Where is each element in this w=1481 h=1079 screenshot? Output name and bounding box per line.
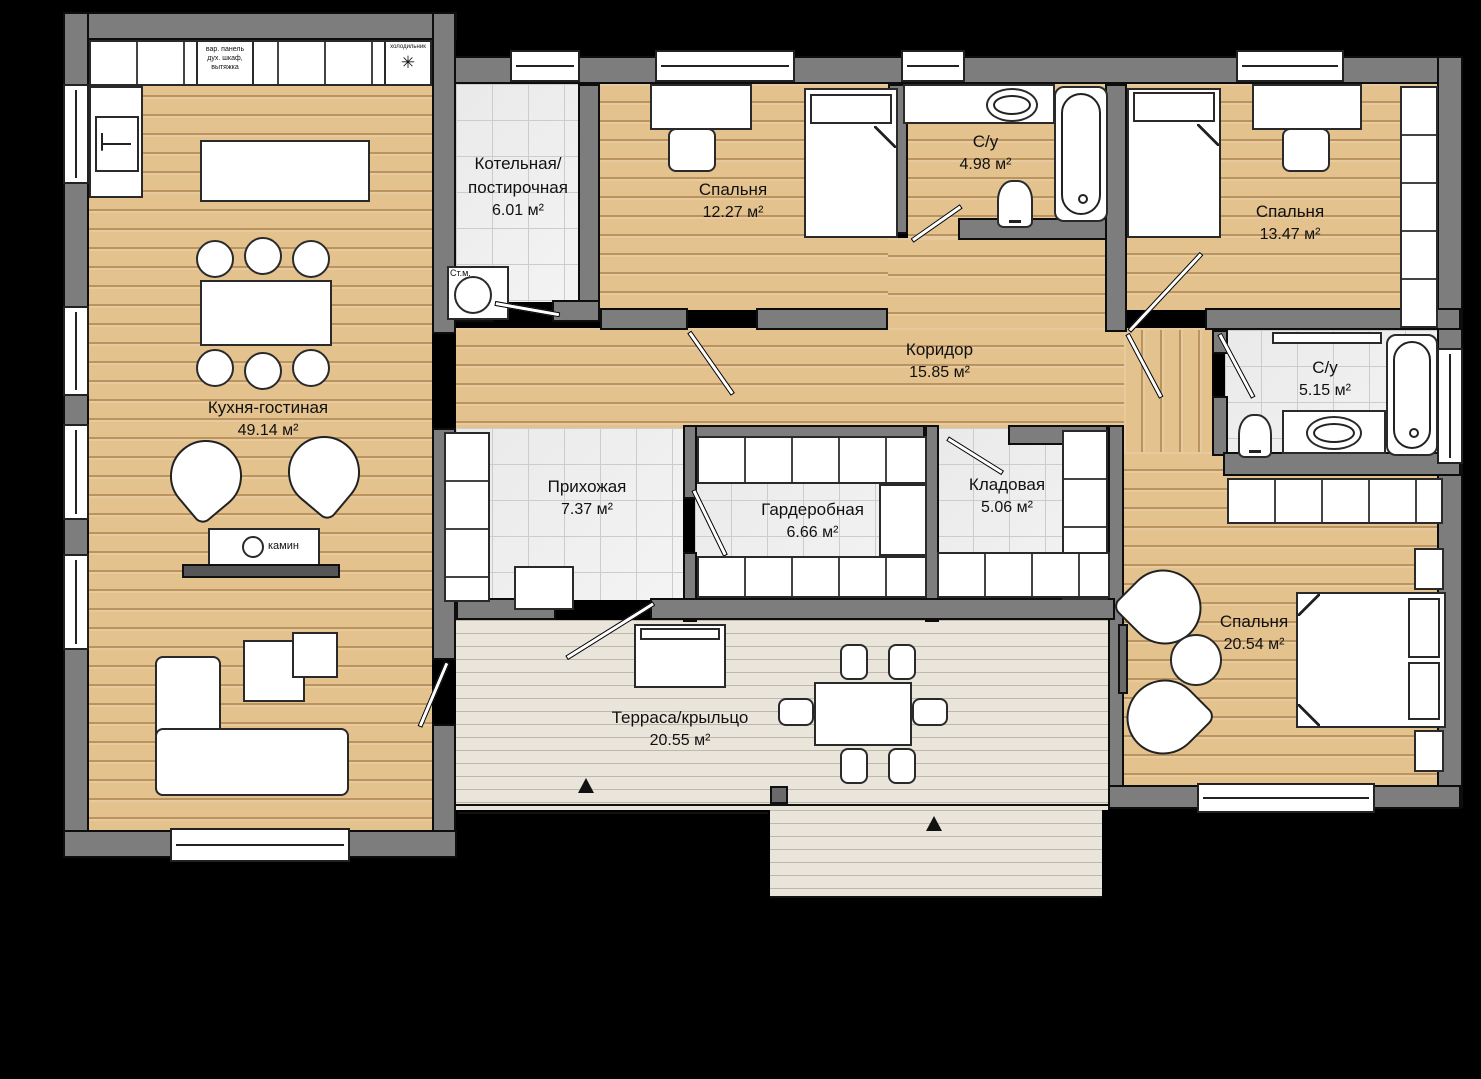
terrace-step-edge [456,804,1108,806]
room-name: Котельная/ [443,152,593,176]
room-area: 20.54 м² [1178,634,1330,656]
window [1197,783,1375,813]
wall-boiler-bottom-b [552,300,600,322]
window [510,50,580,82]
hall-bench [514,566,574,610]
room-area: 6.66 м² [735,522,890,544]
washer-label: Ст.м. [450,268,486,279]
room-name: Коридор [862,338,1017,362]
entry-arrow-icon [926,816,942,831]
wardrobe-shelf-bottom [697,556,927,598]
terrace-chair [840,644,868,680]
room-area: 6.01 м² [443,200,593,222]
nightstand [1414,548,1444,590]
room-name: Спальня [1178,610,1330,634]
window [63,84,89,184]
room-label-storage: Кладовая 5.06 м² [928,473,1086,519]
bathroom-sink [986,88,1038,122]
dining-chair [196,349,234,387]
dining-chair [244,352,282,390]
room-name: Спальня [1215,200,1365,224]
fireplace-label: камин [268,540,318,554]
blanket-fold [874,126,896,148]
terrace-step-edge [770,896,1102,898]
room-label-wardrobe: Гардеробная 6.66 м² [735,498,890,544]
blanket-fold [1298,704,1320,726]
room-name: Прихожая [512,475,662,499]
room-area: 49.14 м² [148,420,388,442]
fireplace-burner-icon [242,536,264,558]
dining-chair [292,240,330,278]
room-label-bedroom-bottom-right: Спальня 20.54 м² [1178,610,1330,656]
terrace-step-edge [458,812,768,814]
blanket-fold [1197,124,1219,146]
room-label-corridor: Коридор 15.85 м² [862,338,1017,384]
entry-arrow-icon [578,778,594,793]
window [63,554,89,650]
room-area: 15.85 м² [862,362,1017,384]
wall-kitchen-divider-lower [432,724,456,832]
pillow [1408,598,1440,658]
room-name: Кладовая [928,473,1086,497]
terrace-sofa-back [640,628,720,640]
coffee-table [292,632,338,678]
window [655,50,795,82]
dining-chair [292,349,330,387]
room-label-bathroom-top: С/у 4.98 м² [918,130,1053,176]
hall-closet [444,432,490,602]
wall-middle-bottom-b [650,598,1115,620]
dining-chair [196,240,234,278]
room-name: С/у [918,130,1053,154]
wall-bathroom-top-right [1105,84,1127,332]
room-label-bathroom-right: С/у 5.15 м² [1255,356,1395,402]
room-label-bedroom-top-right: Спальня 13.47 м² [1215,200,1365,246]
appliance-line: вытяжка [211,64,239,71]
room-area: 12.27 м² [658,202,808,224]
dining-chair [244,237,282,275]
room-area: 7.37 м² [512,499,662,521]
room-floor-corridor-mid [888,238,1108,332]
bathroom-sink [1306,416,1362,450]
wardrobe-row [1227,478,1443,524]
dining-table [200,280,332,346]
wardrobe-shelf-top [697,436,927,484]
window [1437,348,1463,464]
fridge: холодильник ✳ [384,40,432,86]
terrace-post [770,786,788,804]
pillow [1133,92,1215,122]
room-area: 20.55 м² [596,730,764,752]
terrace-chair [888,748,916,784]
kitchen-counter-top [89,40,432,86]
desk [650,84,752,130]
bathroom-shelf [1272,332,1382,344]
window [901,50,965,82]
kitchen-island [200,140,370,202]
room-name: Терраса/крыльцо [596,706,764,730]
wall-bedroom1-bottom-b [756,308,888,330]
wall-bathroom-right-left-b [1212,396,1228,456]
room-name: постирочная [443,176,593,200]
room-floor-corridor [456,328,1212,430]
terrace-chair [912,698,948,726]
washing-machine-drum-icon [454,276,492,314]
toilet [1238,414,1272,458]
room-label-kitchen-living: Кухня-гостиная 49.14 м² [148,396,388,442]
terrace-table [814,682,912,746]
room-area: 5.06 м² [928,497,1086,519]
corner-sofa-horizontal [155,728,349,796]
terrace-chair [840,748,868,784]
room-name: С/у [1255,356,1395,380]
terrace-chair [778,698,814,726]
wardrobe-cabinet [1400,86,1438,328]
toilet [997,180,1033,228]
window [170,828,350,862]
fridge-label: холодильник [390,44,426,50]
room-label-terrace: Терраса/крыльцо 20.55 м² [596,706,764,752]
desk-chair [668,128,716,172]
room-name: Гардеробная [735,498,890,522]
storage-shelf-bottom [937,552,1110,598]
room-area: 13.47 м² [1215,224,1365,246]
room-name: Спальня [658,178,808,202]
room-label-bedroom-top-left: Спальня 12.27 м² [658,178,808,224]
appliance-line: вар. панель [206,46,244,53]
kitchen-sink [95,116,139,172]
cooktop-oven-hood-label: вар. панель дух. шкаф, вытяжка [196,40,254,86]
room-area: 4.98 м² [918,154,1053,176]
wall-top-kitchen [63,12,457,40]
nightstand [1414,730,1444,772]
room-label-boiler: Котельная/ постирочная 6.01 м² [443,152,593,222]
fireplace-hearth [182,564,340,578]
pillow [1408,662,1440,720]
bathtub [1054,86,1108,222]
fridge-asterisk-icon: ✳ [401,53,415,72]
desk [1252,84,1362,130]
window [63,306,89,396]
window [63,424,89,520]
room-name: Кухня-гостиная [148,396,388,420]
window [1236,50,1344,82]
room-label-hallway: Прихожая 7.37 м² [512,475,662,521]
room-area: 5.15 м² [1255,380,1395,402]
floor-plan: вар. панель дух. шкаф, вытяжка холодильн… [0,0,1481,1079]
terrace-chair [888,644,916,680]
wall-bedroom1-bottom-a [600,308,688,330]
pillow [810,94,892,124]
tv-console [1118,624,1128,694]
desk-chair [1282,128,1330,172]
appliance-line: дух. шкаф, [207,55,242,62]
